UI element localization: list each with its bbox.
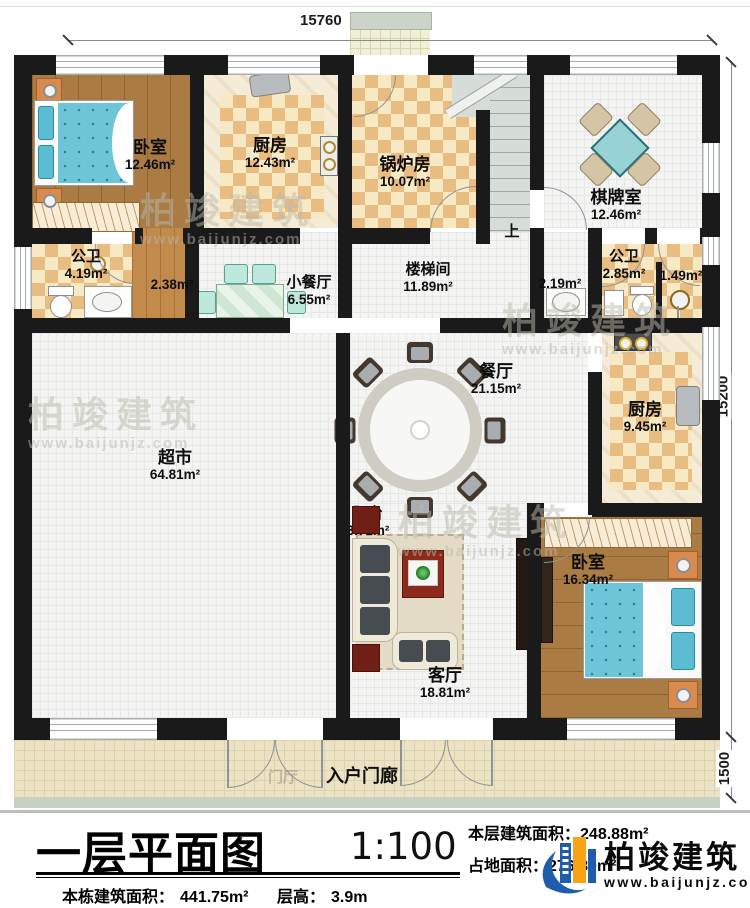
chair (407, 342, 433, 363)
wash-basin (552, 292, 580, 312)
plant (416, 566, 430, 580)
entry-door-leaf (321, 740, 323, 787)
chess-label: 棋牌室12.46m² (591, 188, 642, 222)
bed-pillow (38, 106, 54, 140)
wall (588, 244, 602, 328)
kitchen-sink (676, 386, 700, 426)
toilet (50, 295, 72, 318)
small-dining-label: 小餐厅6.55m² (286, 275, 331, 307)
kitchen2-label: 厨房9.45m² (624, 400, 667, 434)
total-area-line: 本栋建筑面积：441.75m² 层高：3.9m (62, 883, 373, 907)
window (570, 55, 677, 75)
small-dining-table (216, 284, 284, 318)
shower-stand (677, 306, 679, 318)
wall (14, 718, 50, 740)
wall (352, 228, 430, 244)
height-label: 层高： (277, 889, 325, 906)
bed-mattress (585, 583, 647, 677)
porch-label: 入户门廊 (326, 766, 398, 786)
wall (675, 718, 720, 740)
shower-room-label: 1.49m² (660, 268, 703, 283)
table-center (410, 420, 430, 440)
sofa-cushion (360, 576, 390, 604)
wall (527, 503, 541, 718)
entry-door-leaf (227, 740, 229, 787)
wall (14, 318, 290, 333)
side-table (352, 506, 380, 534)
window (14, 247, 32, 309)
wall (323, 718, 400, 740)
wall (440, 318, 720, 333)
burner (619, 337, 632, 350)
wall (530, 228, 544, 318)
foyer-faint-label: 门厅 (268, 766, 298, 787)
burner (323, 141, 336, 154)
wall (527, 503, 544, 517)
wall (183, 228, 300, 244)
wall (702, 55, 720, 143)
closet-label: 2.38m² (151, 277, 194, 292)
nightstand-knob (43, 84, 57, 98)
wall (14, 55, 32, 247)
wall (336, 333, 350, 718)
window (228, 55, 320, 75)
wall (14, 228, 92, 244)
dim-line-top (68, 40, 712, 41)
brand-logo-text: 柏竣建筑 www.baijunjz.com (604, 842, 750, 891)
wall (338, 75, 352, 318)
bath1-label: 公卫4.19m² (65, 249, 108, 281)
brand-name: 柏竣建筑 (604, 842, 750, 875)
chair (252, 264, 276, 284)
stairs-up-label: 上 (504, 224, 519, 241)
wall (14, 309, 32, 740)
boiler-label: 锅炉房10.07m² (380, 155, 431, 189)
bedroom-tv-cabinet (541, 557, 553, 643)
chair (485, 418, 506, 444)
dim-top-value: 15760 (298, 12, 344, 29)
dim-porch-value: 1500 (716, 750, 733, 787)
dining-label: 餐厅21.15m² (471, 362, 521, 396)
wash-basin (92, 292, 122, 312)
wall (493, 718, 567, 740)
wall (428, 55, 474, 75)
height-value: 3.9m (331, 889, 367, 906)
shower-head (670, 290, 690, 310)
bed-pillow (671, 632, 695, 670)
nightstand-knob (676, 688, 691, 703)
total-area-label: 本栋建筑面积： (62, 889, 174, 906)
wall (135, 228, 143, 244)
total-area-value: 441.75m² (180, 889, 249, 906)
bath2-label: 公卫2.85m² (603, 249, 646, 281)
wall (157, 718, 227, 740)
entry-door-leaf (400, 740, 402, 785)
sofa-cushion (360, 607, 390, 635)
brand-url: www.baijunjz.com (604, 874, 750, 890)
sofa-cushion (399, 640, 423, 662)
stair-hall-label: 楼梯间11.89m² (403, 262, 453, 294)
wall (702, 400, 720, 740)
sofa-cushion (360, 545, 390, 573)
wall (320, 55, 354, 75)
sofa-cushion (426, 640, 450, 662)
window (56, 55, 164, 75)
bedroom1-label: 卧室12.46m² (125, 138, 175, 172)
sheet-top-rule (0, 6, 750, 7)
window (702, 143, 720, 193)
burner (323, 158, 336, 171)
nightstand-knob (43, 194, 57, 208)
burner (635, 337, 648, 350)
washing-machine (604, 290, 624, 316)
wall (190, 75, 204, 244)
window (474, 55, 527, 75)
wall (588, 228, 602, 244)
porch-edge-strip (14, 797, 720, 808)
window (702, 327, 720, 400)
sheet-scale: 1:100 (350, 825, 457, 868)
title-underline (36, 872, 460, 875)
brand-logo-icon (536, 837, 598, 895)
wash-nook-label: 2.19m² (539, 276, 582, 291)
bed-pillow (38, 145, 54, 179)
living-label: 客厅18.81m² (420, 666, 470, 700)
floor-plan: 15760 15200 1500 上 (0, 0, 750, 908)
supermarket-label: 超市64.81m² (150, 448, 200, 482)
room-supermarket-floor (32, 333, 336, 718)
window (702, 237, 720, 265)
wall (530, 75, 544, 190)
wall (164, 55, 228, 75)
wall (588, 372, 602, 515)
window (50, 718, 157, 740)
title-block: 一层平面图 1:100 本栋建筑面积：441.75m² 层高：3.9m 本层建筑… (0, 813, 750, 908)
bedroom2-label: 卧室16.34m² (563, 553, 613, 587)
side-table (352, 644, 380, 672)
kitchen1-label: 厨房12.43m² (245, 136, 295, 170)
entry-door-leaf (491, 740, 493, 785)
nightstand-knob (676, 558, 691, 573)
chair (407, 497, 433, 518)
toilet (632, 294, 652, 316)
chair (197, 291, 216, 314)
wall (645, 228, 657, 244)
bed-pillow (671, 588, 695, 626)
window (567, 718, 675, 740)
wall (476, 110, 490, 244)
wall (527, 55, 570, 75)
back-step (350, 12, 432, 30)
title-underline-thin (36, 877, 460, 878)
wall (592, 503, 720, 517)
chair (224, 264, 248, 284)
stairs (490, 75, 530, 232)
brand-logo: 柏竣建筑 www.baijunjz.com (536, 837, 750, 895)
back-porch-tile (350, 28, 430, 55)
